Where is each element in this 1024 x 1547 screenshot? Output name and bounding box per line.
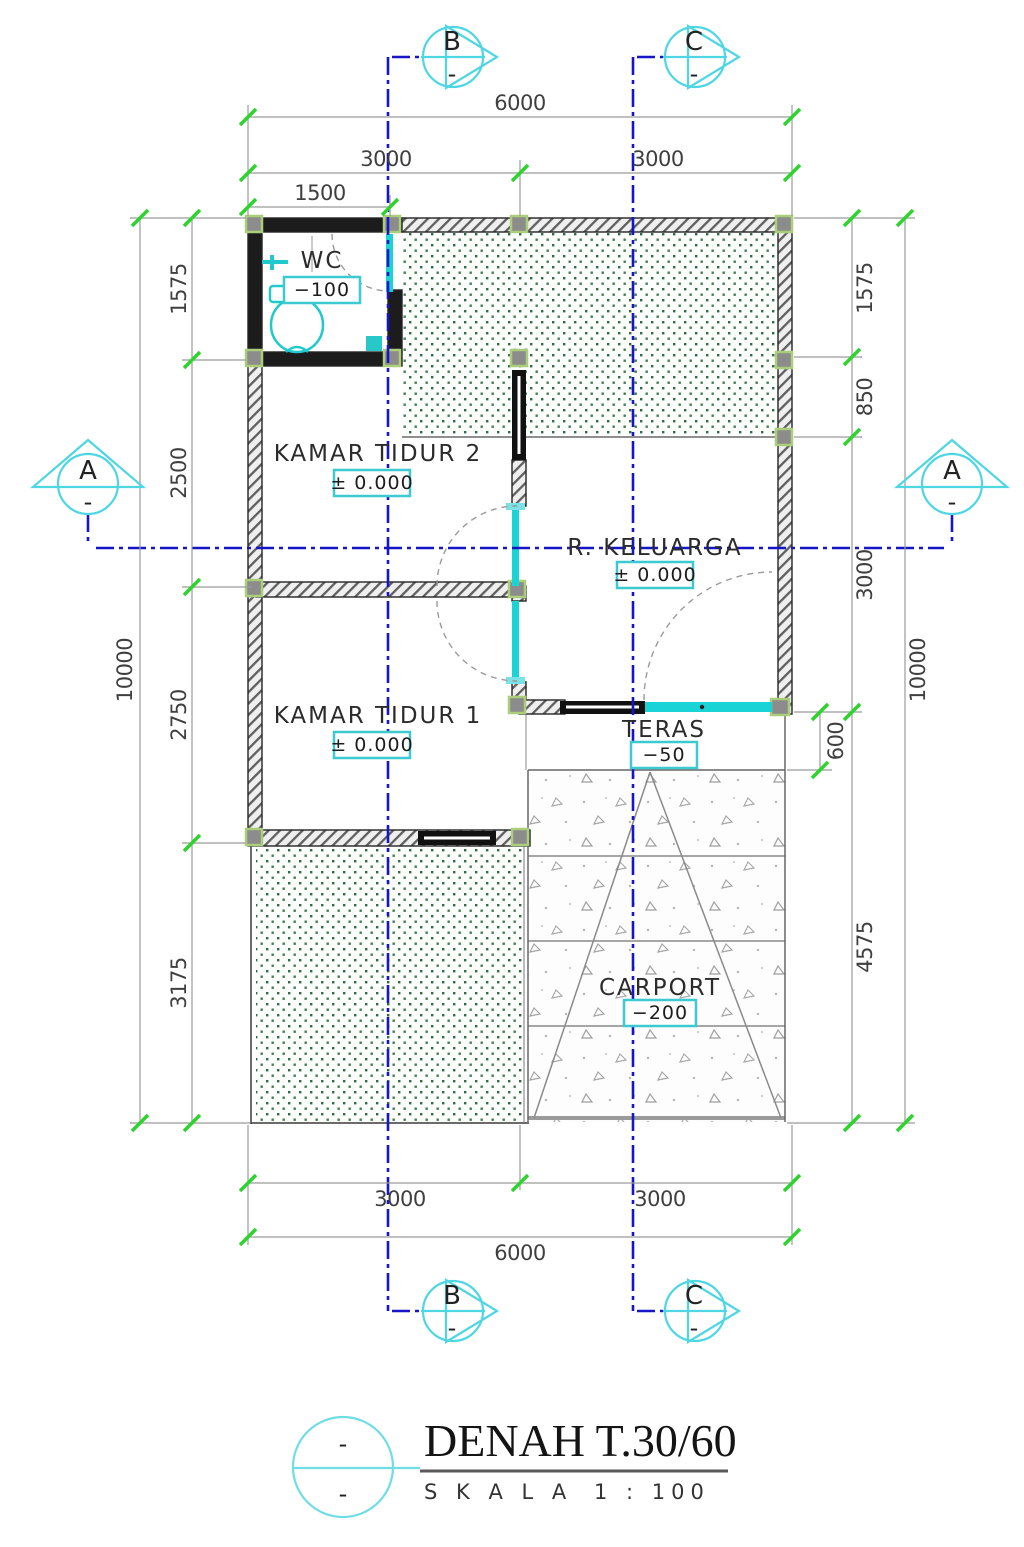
- svg-text:-: -: [448, 1314, 457, 1342]
- grid-bubble-c-bottom: C -: [663, 1280, 739, 1342]
- svg-text:B: B: [443, 27, 461, 57]
- svg-text:A: A: [943, 456, 961, 486]
- svg-text:−100: −100: [294, 279, 350, 301]
- faucet-icon: [262, 255, 288, 270]
- scale-label: S K A L A: [424, 1480, 572, 1504]
- carport-slab: [526, 714, 785, 1122]
- room-label-carport: CARPORT: [599, 975, 721, 1001]
- room-label-bedroom2: KAMAR TIDUR 2: [274, 441, 483, 467]
- drawing-title: DENAH T.30/60: [424, 1415, 737, 1466]
- svg-text:-: -: [690, 1314, 699, 1342]
- dim-bottom-seg1: 3000: [374, 1187, 425, 1211]
- dim-right-s4: 4575: [853, 921, 877, 972]
- window-bedroom2-courtyard: [512, 370, 526, 460]
- elevation-tag-bedroom2: ± 0.000: [330, 470, 413, 496]
- grid-bubble-c-top: C -: [663, 26, 739, 88]
- title-bubble-bottom: -: [339, 1480, 348, 1508]
- svg-text:-: -: [448, 60, 457, 88]
- svg-text:-: -: [690, 60, 699, 88]
- dim-left-s1: 1575: [167, 263, 191, 314]
- scale-value: 1 : 100: [594, 1480, 710, 1504]
- svg-text:−50: −50: [642, 744, 685, 766]
- svg-text:C: C: [685, 1281, 703, 1311]
- grid-bubble-a-left: A -: [33, 440, 143, 516]
- garden-front-yard: [251, 846, 529, 1124]
- grid-bubble-a-right: A -: [897, 440, 1007, 516]
- elevation-tag-wc: −100: [284, 277, 360, 303]
- elevation-tag-teras: −50: [631, 742, 697, 768]
- dim-right-teras-depth: 600: [824, 722, 848, 761]
- svg-text:-: -: [948, 488, 957, 516]
- grid-bubble-b-bottom: B -: [421, 1280, 497, 1342]
- dim-right-total: 10000: [906, 638, 930, 702]
- dim-bottom-seg2: 3000: [634, 1187, 685, 1211]
- door-bedroom2: [437, 503, 525, 586]
- elevation-tag-bedroom1: ± 0.000: [330, 732, 413, 758]
- grid-bubble-b-top: B -: [421, 26, 497, 88]
- dim-top-sub: 1500: [294, 181, 345, 205]
- svg-text:± 0.000: ± 0.000: [613, 564, 696, 586]
- floor-plan-sheet: 6000 3000 3000 1500 3000 3000 6000 1575 …: [0, 0, 1024, 1547]
- dim-right-s1: 1575: [853, 262, 877, 313]
- svg-text:C: C: [685, 27, 703, 57]
- elevation-tag-living: ± 0.000: [613, 562, 696, 588]
- room-label-living: R. KELUARGA: [567, 535, 742, 561]
- dim-top-total: 6000: [494, 91, 545, 115]
- dim-top-seg2: 3000: [632, 147, 683, 171]
- room-label-wc: WC: [301, 248, 344, 274]
- title-block: - - DENAH T.30/60 S K A L A 1 : 100: [293, 1415, 737, 1517]
- title-bubble-top: -: [339, 1430, 348, 1458]
- elevation-tag-carport: −200: [624, 1000, 696, 1026]
- plan-canvas: 6000 3000 3000 1500 3000 3000 6000 1575 …: [0, 0, 1024, 1547]
- door-main-entrance: [644, 572, 772, 712]
- room-label-bedroom1: KAMAR TIDUR 1: [274, 703, 483, 729]
- dim-left-s4: 3175: [167, 957, 191, 1008]
- window-bedroom1-front: [418, 831, 496, 845]
- svg-text:± 0.000: ± 0.000: [330, 734, 413, 756]
- room-label-teras: TERAS: [621, 717, 706, 743]
- dim-right-s2: 850: [853, 378, 877, 417]
- dim-top-seg1: 3000: [360, 147, 411, 171]
- svg-text:B: B: [443, 1281, 461, 1311]
- svg-text:−200: −200: [632, 1002, 688, 1024]
- garden-courtyard-top: [402, 232, 778, 437]
- svg-text:A: A: [79, 456, 97, 486]
- door-bedroom1: [437, 601, 525, 684]
- floor-drain-icon: [366, 336, 382, 351]
- dim-bottom-total: 6000: [494, 1241, 545, 1265]
- svg-text:-: -: [84, 488, 93, 516]
- dim-left-s3: 2750: [167, 689, 191, 740]
- dim-left-total: 10000: [113, 638, 137, 702]
- svg-text:± 0.000: ± 0.000: [330, 472, 413, 494]
- dim-right-s3: 3000: [853, 549, 877, 600]
- dim-left-s2: 2500: [167, 447, 191, 498]
